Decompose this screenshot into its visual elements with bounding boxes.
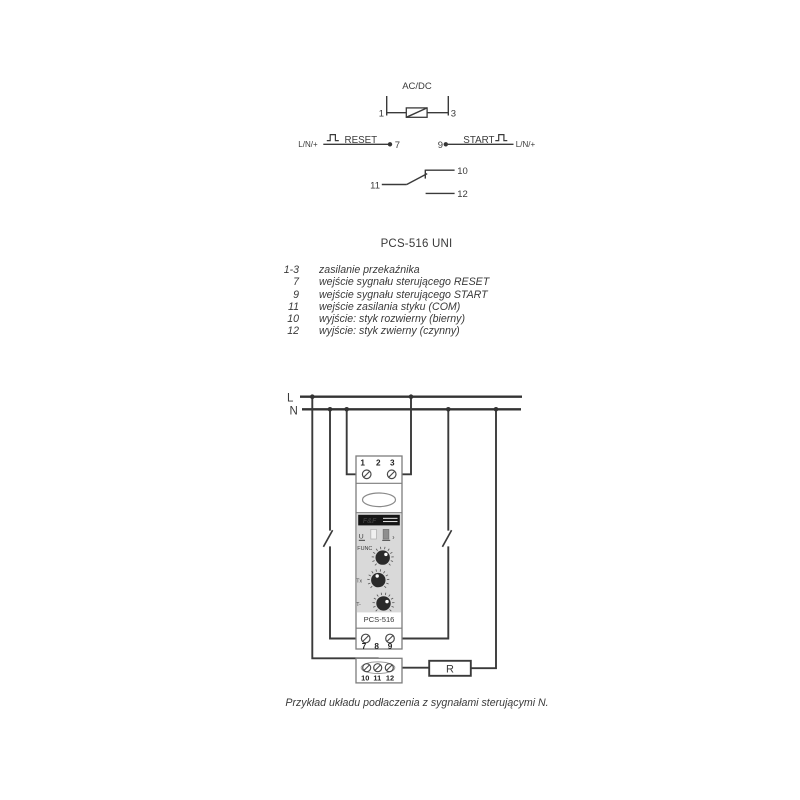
terminal-label-12: 12 [386, 674, 394, 683]
knob2-pointer [376, 574, 379, 577]
load-label: R [446, 663, 454, 675]
legend-number: 1-3 [281, 264, 299, 276]
legend-row: 12 wyjście: styk zwierny (czynny) [281, 325, 489, 337]
legend-row: 7 wejście sygnału sterującego RESET [281, 276, 489, 288]
terminal-label-8: 8 [374, 642, 379, 651]
load-relay: R [429, 661, 471, 676]
knob2-label: Tx [356, 579, 362, 585]
pulse-icon [327, 135, 339, 141]
brand-logo: F&F [358, 515, 400, 526]
screw-terminal-1 [362, 470, 371, 479]
reset-terminal-dot [388, 142, 392, 146]
supply-label: AC/DC [402, 81, 432, 92]
contact-nc-label: 10 [457, 166, 468, 177]
legend-description: zasilanie przekaźnika [319, 264, 420, 276]
terminal-label-2: 2 [376, 458, 381, 467]
legend-row: 10 wyjście: styk rozwierny (bierny) [281, 313, 489, 325]
junction-dot [446, 407, 451, 412]
legend-number: 9 [281, 289, 299, 301]
terminal-label-7: 7 [362, 642, 367, 651]
screw-terminal-10 [363, 664, 371, 672]
diagram-caption: Przykład układu podłaczenia z sygnałami … [280, 697, 554, 709]
brand-logo-text: F&F [363, 518, 377, 525]
knob1-pointer [384, 553, 387, 556]
screw-terminal-12 [385, 664, 393, 672]
terminal-label-10: 10 [361, 674, 369, 683]
legend-number: 7 [281, 276, 299, 288]
wiring-diagram: L N [283, 388, 539, 688]
terminal-label-11: 11 [373, 674, 381, 683]
contact-no-label: 12 [457, 189, 468, 200]
start-side-label: L/N/+ [516, 140, 536, 149]
line-n-label: N [290, 406, 298, 418]
wire-load-to-n [471, 409, 496, 668]
knob3 [376, 596, 390, 610]
start-terminal-label: 9 [438, 140, 443, 151]
page-title: PCS-516 UNI [283, 238, 550, 250]
junction-dot [494, 407, 499, 412]
legend-number: 12 [281, 325, 299, 337]
junction-dot [409, 394, 414, 399]
junction-dot [328, 407, 333, 412]
pulse-icon [495, 135, 507, 141]
legend-description: wejście zasilania styku (COM) [319, 301, 460, 313]
junction-dot [344, 407, 349, 412]
junction-dot [310, 394, 315, 399]
terminal-label-1: 1 [360, 458, 365, 467]
terminal-label-3: 3 [390, 458, 395, 467]
line-l-label: L [287, 393, 294, 405]
knob3-pointer [385, 600, 388, 603]
label-window [363, 493, 396, 507]
legend-number: 10 [281, 313, 299, 325]
reset-switch-blade [323, 530, 332, 547]
knob1-label: FUNC [357, 546, 372, 552]
contact-com-label: 11 [370, 180, 380, 191]
supply-coil-symbol: AC/DC 1 3 [379, 81, 456, 120]
supply-rails: L N [287, 393, 522, 418]
terminal-legend: 1-3 zasilanie przekaźnika 7 wejście sygn… [281, 264, 489, 338]
legend-row: 9 wejście sygnału sterującego START [281, 289, 489, 301]
led-bar-light [371, 529, 377, 539]
screw-terminal-3 [387, 470, 396, 479]
pcs516-device: 1 2 3 F&F U › [356, 456, 402, 683]
start-signal-label: START [463, 135, 494, 146]
page: AC/DC 1 3 L/N/+ RESET 7 9 START L/N/+ [0, 0, 800, 800]
terminal-3-label: 3 [451, 109, 456, 120]
led-u-label: U [359, 534, 364, 541]
knob3-label: T- [356, 602, 361, 608]
terminal-1-label: 1 [379, 109, 384, 120]
legend-description: wejście sygnału sterującego RESET [319, 276, 489, 288]
control-schematic: AC/DC 1 3 L/N/+ RESET 7 9 START L/N/+ [283, 76, 545, 206]
contact-blade [407, 174, 428, 185]
legend-description: wyjście: styk rozwierny (bierny) [319, 313, 465, 325]
led-bar-dark [383, 529, 389, 539]
start-switch-blade [442, 530, 451, 547]
legend-number: 11 [281, 301, 299, 313]
start-input-symbol: 9 START L/N/+ [438, 135, 536, 151]
terminal-label-9: 9 [388, 642, 393, 651]
legend-description: wejście sygnału sterującego START [319, 289, 488, 301]
legend-description: wyjście: styk zwierny (czynny) [319, 325, 460, 337]
reset-side-label: L/N/+ [298, 140, 318, 149]
device-model-label: PCS-516 [364, 615, 395, 624]
legend-row: 1-3 zasilanie przekaźnika [281, 264, 489, 276]
knob1 [376, 550, 390, 564]
legend-row: 11 wejście zasilania styku (COM) [281, 301, 489, 313]
contact-symbol: 11 10 12 [370, 166, 468, 200]
reset-terminal-label: 7 [395, 140, 400, 151]
wires [312, 397, 496, 669]
reset-input-symbol: L/N/+ RESET 7 [298, 135, 400, 151]
screw-terminal-11 [374, 664, 382, 672]
